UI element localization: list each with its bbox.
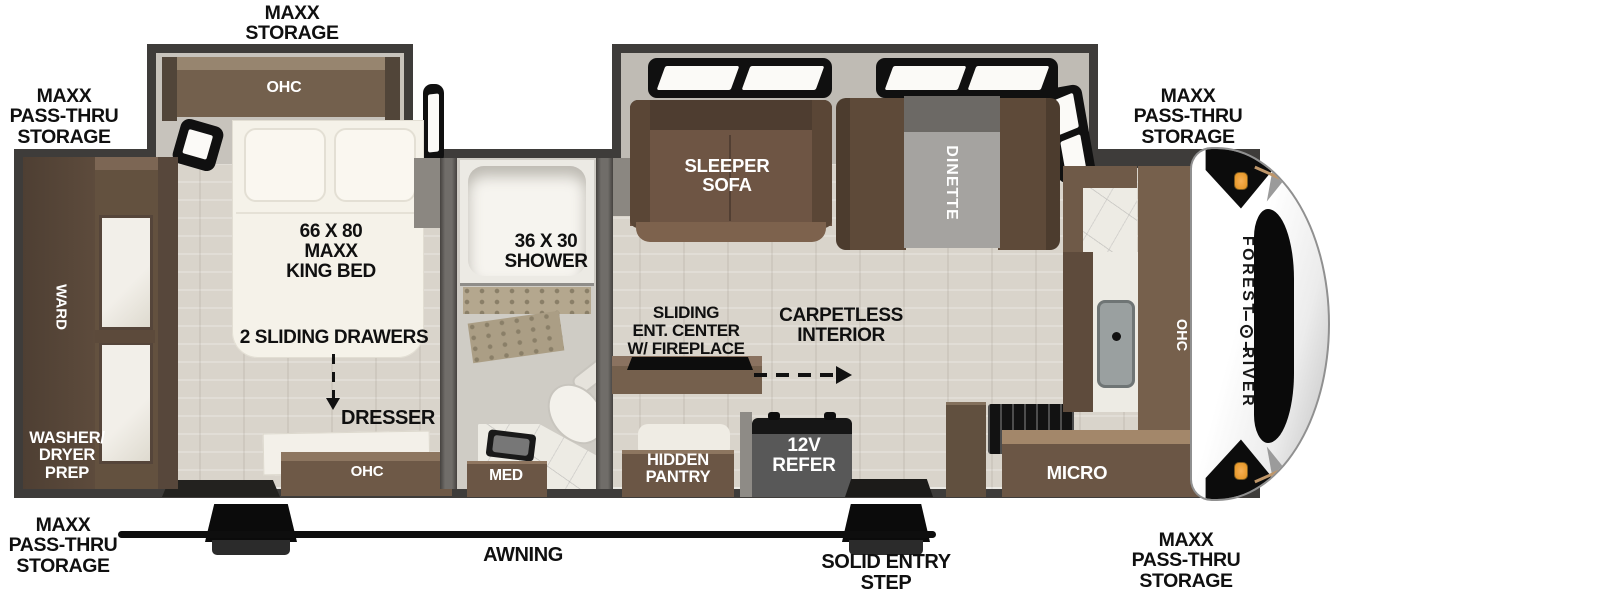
label-shower: 36 X 30 SHOWER [504, 232, 587, 272]
bed-blanket-seam [236, 212, 420, 214]
cap-marker-light-bottom [1234, 462, 1248, 480]
sleeper-sofa-arm-right [812, 100, 832, 228]
wardrobe-mirror-lower [99, 342, 153, 464]
kitchen-inner-cabinet-face [1063, 252, 1093, 412]
bedroom-window-right [423, 84, 444, 164]
window-pane [182, 129, 213, 160]
wardrobe-right-edge [158, 157, 178, 489]
window-pane [428, 94, 439, 153]
bath-sink [486, 429, 537, 462]
dinette-bench-right [998, 98, 1060, 250]
traffic-arrow-head [836, 366, 852, 384]
label-ent-center: SLIDING ENT. CENTER W/ FIREPLACE [627, 304, 744, 358]
fireplace [627, 357, 753, 370]
label-sliding-drawers: 2 SLIDING DRAWERS [240, 328, 429, 348]
label-washer-dryer: WASHER/ DRYER PREP [29, 430, 105, 482]
label-king-bed: 66 X 80 MAXX KING BED [286, 222, 376, 282]
label-dresser: DRESSER [341, 408, 435, 429]
label-awning: AWNING [483, 545, 563, 566]
bed-pillow-right [334, 128, 416, 202]
label-12v-refer: 12V REFER [772, 436, 835, 476]
label-maxx-passthru-top-left: MAXX PASS-THRU STORAGE [10, 86, 119, 147]
cap-windshield [1254, 209, 1294, 443]
label-micro: MICRO [1047, 463, 1108, 482]
label-ohc-bedroom: OHC [267, 80, 302, 97]
label-ward: WARD [53, 284, 70, 330]
kitchen-corner-counter [1083, 188, 1137, 254]
label-ohc-dresser: OHC [351, 464, 384, 480]
bath-sink-basin [492, 435, 530, 456]
label-maxx-passthru-bottom-right: MAXX PASS-THRU STORAGE [1132, 530, 1241, 591]
rv-floorplan: FOREST RIVER MAXX STORAGE MAXX PASS-THRU… [0, 0, 1600, 601]
shower-glass-line [460, 283, 594, 286]
label-maxx-passthru-bottom-left: MAXX PASS-THRU STORAGE [9, 515, 118, 576]
kitchen-counter-door-side [946, 402, 986, 497]
wardrobe-mid-band [95, 330, 155, 343]
bath-wall-right [596, 158, 613, 489]
brand-forest: FOREST [1238, 236, 1256, 316]
bed-pillow-left [244, 128, 326, 202]
living-window-left [648, 58, 832, 98]
living-window-right [876, 58, 1058, 98]
drawer-arrow-head [326, 398, 340, 410]
label-maxx-passthru-top-right: MAXX PASS-THRU STORAGE [1134, 86, 1243, 147]
window-pane [657, 66, 739, 90]
entry-door-mat [845, 479, 933, 497]
label-maxx-storage-top: MAXX STORAGE [245, 3, 338, 44]
bath-wall-left [440, 158, 457, 489]
bedroom-entry-step-front [212, 540, 290, 555]
label-sleeper-sofa: SLEEPER SOFA [685, 156, 770, 195]
window-pane [741, 66, 823, 90]
refer-alcove-wall [740, 412, 752, 497]
refer-knob-left [768, 412, 780, 420]
traffic-arrow-shaft [754, 373, 836, 377]
forest-river-logo: FOREST RIVER [1238, 236, 1256, 408]
label-solid-entry-step: SOLID ENTRY STEP [821, 552, 950, 594]
label-hidden-pantry: HIDDEN PANTRY [646, 452, 711, 487]
bedroom-cabinet-cap-left [162, 57, 177, 121]
kitchen-sink [1097, 300, 1135, 388]
kitchen-faucet [1112, 332, 1121, 341]
label-carpetless: CARPETLESS INTERIOR [779, 306, 903, 346]
bedroom-floor-mat [162, 480, 280, 497]
drawer-arrow-shaft [332, 354, 335, 398]
bedroom-cabinet-cap-right [385, 57, 400, 121]
sleeper-sofa-front [636, 222, 826, 242]
sleeper-sofa-arm-left [630, 100, 650, 228]
window-pane [968, 66, 1050, 90]
wardrobe-mirror-upper [99, 215, 153, 330]
front-cap [1190, 147, 1330, 501]
dinette-bench-left [836, 98, 906, 250]
shower-step-upper [463, 287, 591, 314]
awning-line [118, 531, 936, 538]
label-med: MED [489, 468, 523, 484]
bedroom-bath-wall-stub [414, 158, 440, 228]
living-wall-stub [613, 158, 631, 216]
window-pane [884, 66, 966, 90]
label-dinette: DINETTE [942, 145, 960, 220]
label-ohc-kitchen: OHC [1173, 319, 1189, 351]
refer-knob-right [824, 412, 836, 420]
micro-counter [1002, 430, 1216, 497]
forest-river-emblem-icon [1241, 325, 1254, 338]
brand-river: RIVER [1238, 347, 1256, 408]
cap-marker-light-top [1234, 172, 1248, 190]
